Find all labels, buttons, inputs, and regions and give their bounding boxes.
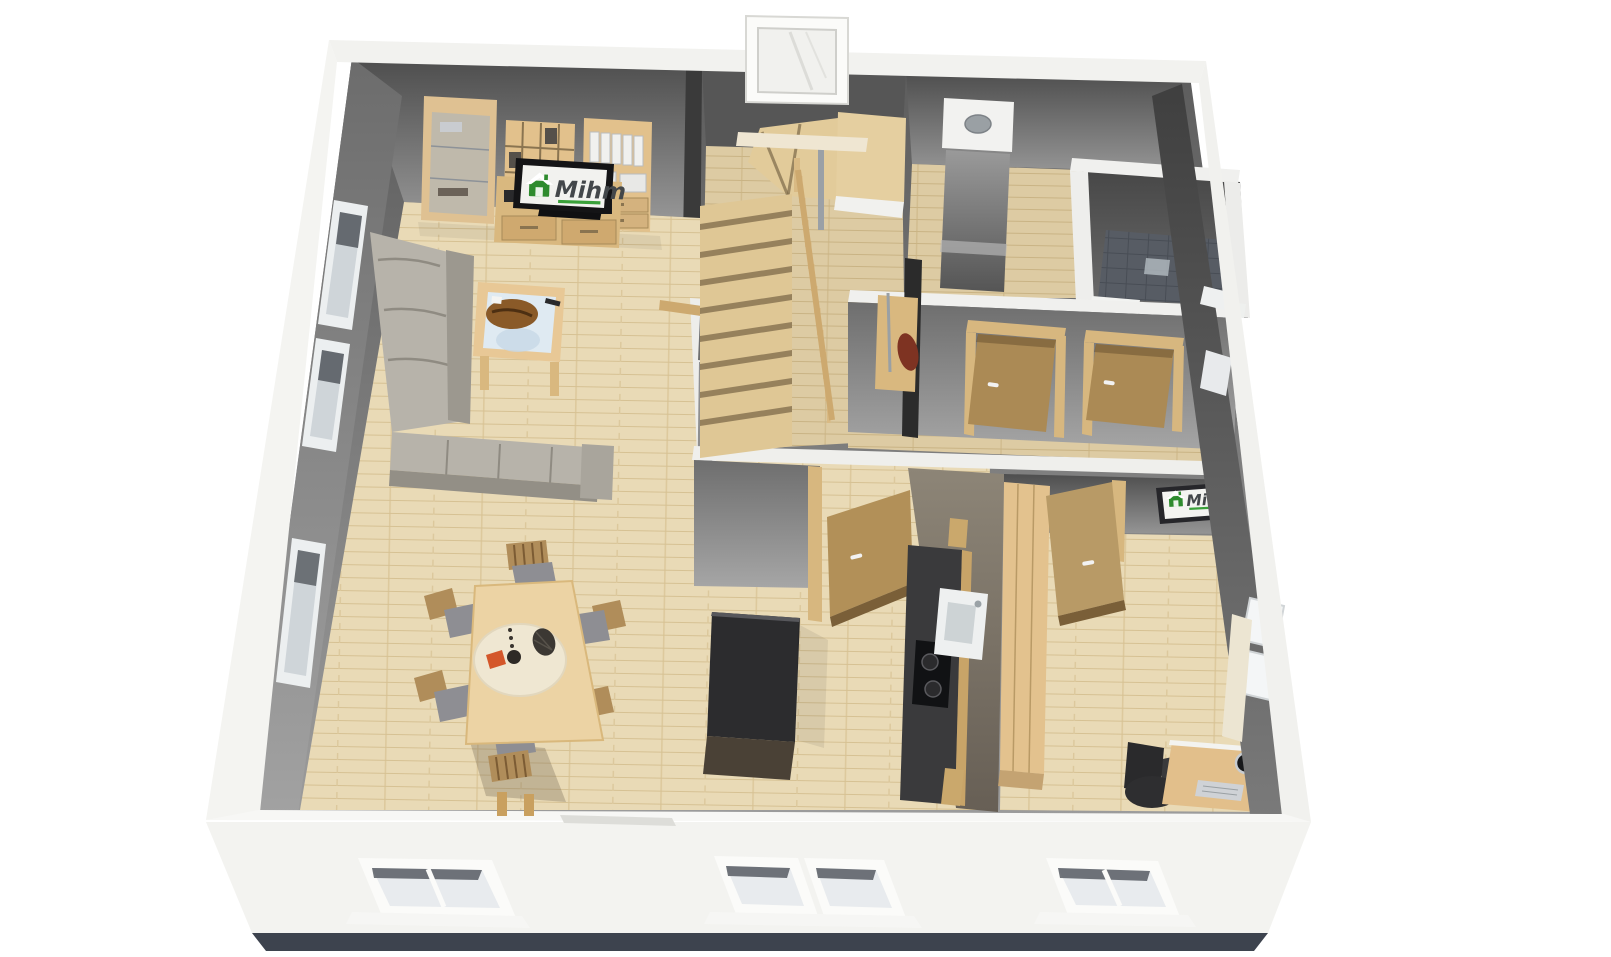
stair-flight [700, 194, 792, 458]
office-door [1046, 480, 1126, 626]
office-wardrobe [998, 482, 1050, 790]
vase [507, 650, 521, 664]
floorplan-stage: Mihm [0, 0, 1611, 957]
island-shadow [796, 624, 828, 748]
chimney [940, 98, 1014, 292]
stair-landing [836, 112, 906, 202]
glass-display-cabinet [421, 96, 497, 224]
shower-drain [1144, 258, 1170, 276]
foundation [252, 933, 1268, 951]
